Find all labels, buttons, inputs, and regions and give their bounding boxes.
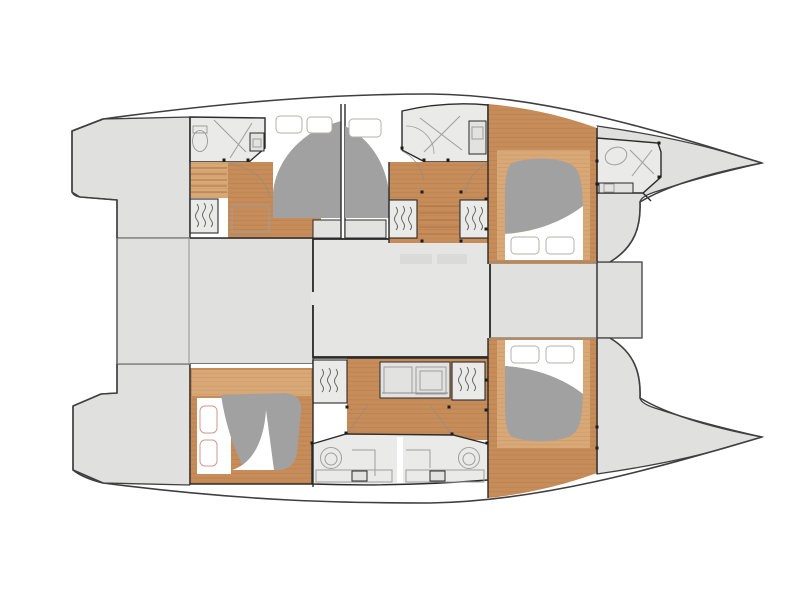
sink: [250, 133, 264, 151]
post-dot: [448, 406, 451, 409]
post-dot: [460, 240, 463, 243]
fwd-cabin-port: Port forward cabin: [488, 104, 597, 264]
post-dot: [311, 442, 314, 445]
mid-cabin-port: Port midship cabin Port forward bathroom…: [345, 104, 488, 243]
post-dot: [460, 191, 463, 194]
post-dot: [658, 142, 661, 145]
post-dot: [421, 240, 424, 243]
aft-cockpit: Aft cockpit: [117, 238, 313, 364]
pillow: [200, 440, 217, 466]
post-dot: [247, 159, 250, 162]
post-dot: [223, 159, 226, 162]
post-dot: [485, 379, 488, 382]
heads-divider: [397, 437, 403, 483]
post-dot: [658, 176, 661, 179]
post-dot: [346, 406, 349, 409]
cabin-floor-wood: [228, 162, 273, 238]
post-dot: [596, 160, 599, 163]
transom-platform-starboard: Starboard transom platform: [73, 364, 190, 485]
saloon-group: Saloon: [311, 239, 490, 357]
galley-counter-faint-1: [400, 254, 432, 264]
heads-starboard: Starboard aft bathroom Starboard forward…: [312, 434, 488, 485]
wardrobe-fwd-starboard: Hanging wardrobe: [452, 362, 485, 400]
catamaran-floor-plan: Sailing catamaran accommodation deck pla…: [0, 0, 800, 600]
post-dot: [421, 191, 424, 194]
post-dot: [401, 147, 404, 150]
post-dot: [596, 183, 599, 186]
post-dot: [485, 228, 488, 231]
pillow: [511, 346, 539, 363]
post-dot: [345, 432, 348, 435]
wardrobe-mid-port-1: Hanging wardrobe: [389, 200, 417, 238]
galley-counter-faint-2: [437, 254, 467, 264]
wardrobe-aft-starboard: Hanging wardrobe: [313, 360, 347, 403]
pillow: [307, 117, 332, 133]
floor-plan-svg: Sailing catamaran accommodation deck pla…: [0, 0, 800, 600]
post-dot: [485, 198, 488, 201]
pillow: [511, 237, 539, 254]
cabin-floor-light: [192, 370, 311, 396]
post-dot: [485, 409, 488, 412]
pillow: [200, 406, 217, 433]
post-dot: [447, 159, 450, 162]
post-dot: [596, 447, 599, 450]
sink-basin: [430, 471, 445, 481]
saloon-door-gap: [311, 292, 315, 305]
pillow: [546, 237, 574, 254]
wardrobe-mid-port-2: Hanging wardrobe: [460, 200, 488, 238]
post-dot: [486, 442, 489, 445]
fwd-cabin-starboard: Starboard forward cabin: [488, 338, 597, 498]
post-dot: [596, 426, 599, 429]
bulkhead-port: [341, 104, 345, 238]
pillow: [276, 116, 302, 133]
post-dot: [451, 433, 454, 436]
foredeck: Foredeck: [490, 262, 642, 338]
aft-cabin-starboard: Starboard aft cabin: [190, 368, 313, 484]
transom-platform-port: Port transom platform: [72, 117, 190, 238]
bow-deck-starboard: Starboard bow deck: [597, 338, 762, 474]
post-dot: [423, 159, 426, 162]
berth-footbox: [345, 220, 386, 238]
pillow: [546, 346, 574, 363]
wardrobe-aft-port: Hanging wardrobe: [190, 199, 218, 233]
berth-footbox: [313, 220, 342, 238]
pillow: [349, 119, 381, 137]
sink-basin: [352, 471, 367, 481]
